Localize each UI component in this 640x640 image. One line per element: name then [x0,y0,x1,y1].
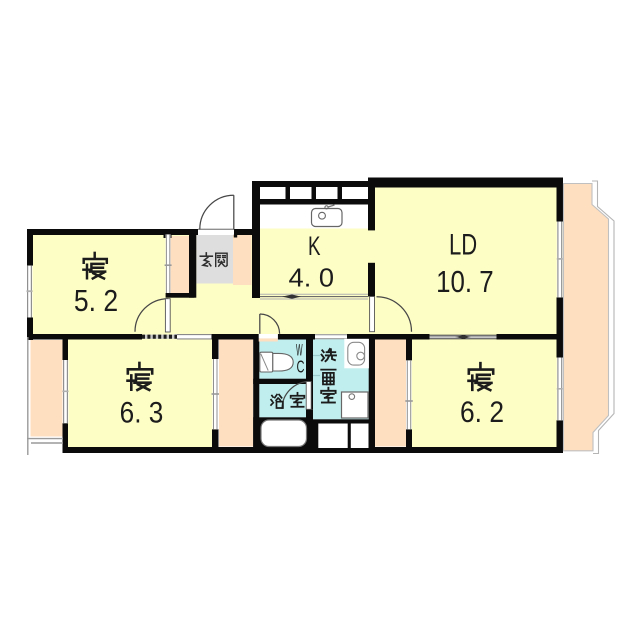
svg-text:6. 3: 6. 3 [120,397,164,430]
svg-text:10. 7: 10. 7 [436,264,494,299]
svg-text:5. 2: 5. 2 [74,284,118,318]
svg-text:4. 0: 4. 0 [289,263,335,293]
svg-text:LD: LD [449,228,477,261]
svg-text:K: K [308,231,321,261]
svg-text:C: C [297,356,305,376]
svg-text:6. 2: 6. 2 [460,396,504,429]
